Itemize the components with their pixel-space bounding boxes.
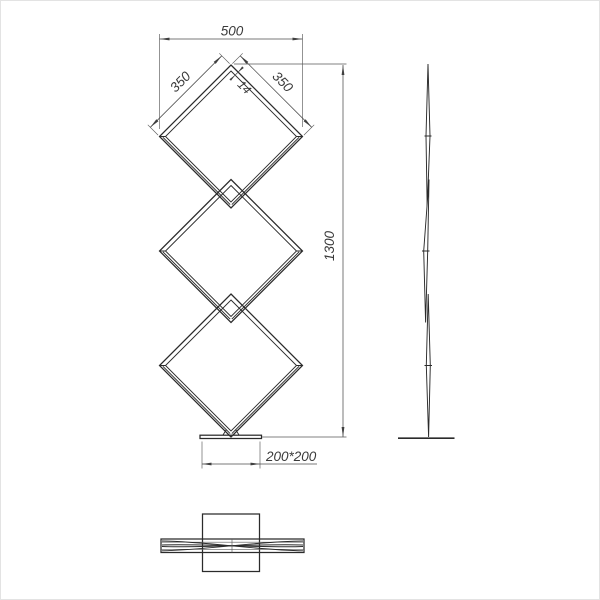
plan-base-square <box>203 514 260 572</box>
dim-500-label: 500 <box>221 24 244 39</box>
dim-1300-label: 1300 <box>322 230 337 261</box>
dim-14-label: 14 <box>235 77 255 97</box>
top-view <box>161 514 304 572</box>
drawing-canvas: 500 350 350 14 <box>0 0 600 600</box>
dim-350-right-label: 350 <box>269 69 296 96</box>
dim-200x200-label: 200*200 <box>265 449 317 464</box>
plan-strip <box>161 539 304 553</box>
diamond-middle <box>160 180 303 323</box>
dimensions: 500 350 350 14 <box>148 24 347 469</box>
side-view <box>398 64 455 438</box>
technical-drawing: 500 350 350 14 <box>1 1 600 600</box>
diamond-bottom <box>160 294 303 437</box>
dimension-frame-width: 14 <box>229 66 254 97</box>
dimension-base-plate: 200*200 <box>202 442 317 469</box>
dim-350-left-label: 350 <box>167 68 194 95</box>
dimension-total-height: 1300 <box>234 64 347 437</box>
front-view <box>160 65 303 439</box>
dimension-left-side: 350 <box>148 53 230 135</box>
